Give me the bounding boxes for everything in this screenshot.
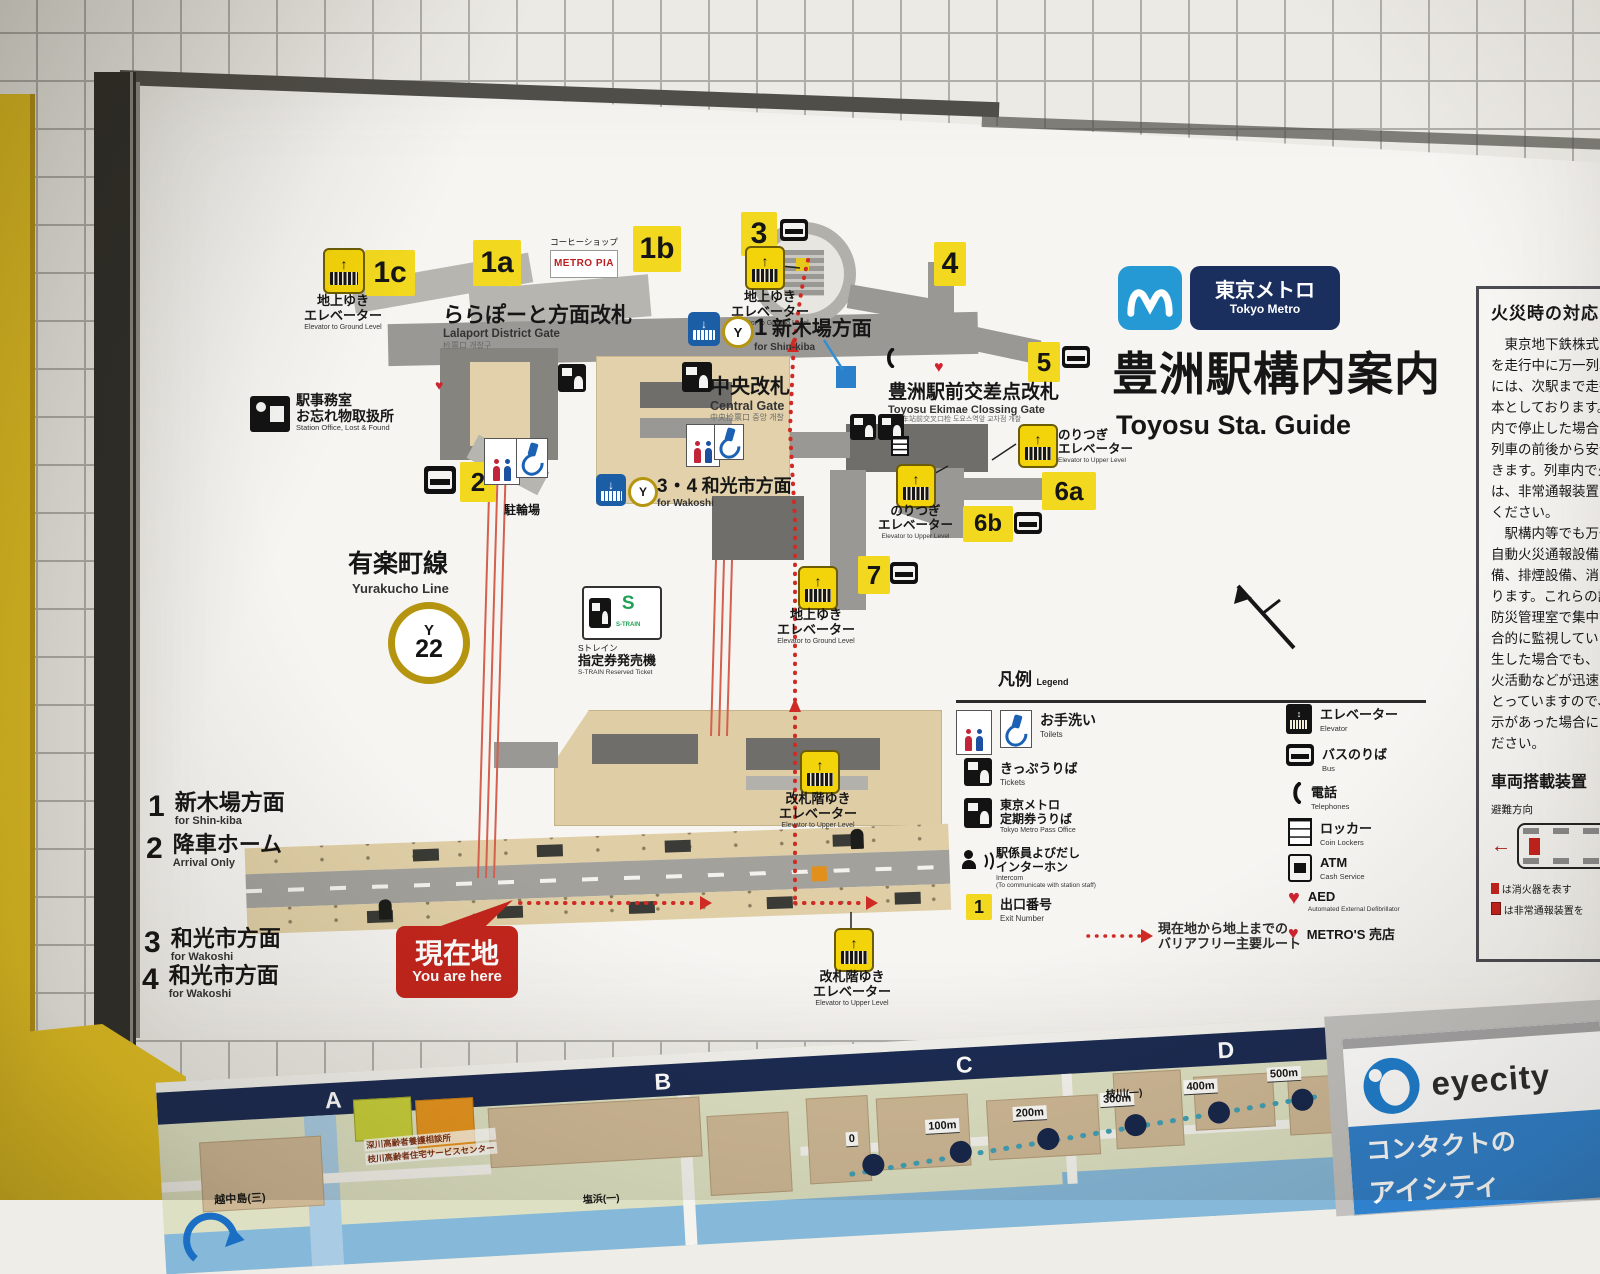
station-number-y22: Y 22 <box>388 602 470 684</box>
bus-icon <box>780 219 808 241</box>
fire-panel-body: 東京地下鉄株式会を走行中に万一列車には、次駅まで走行本としております。内で停止し… <box>1491 334 1600 754</box>
lalaport-gate-room <box>470 362 530 446</box>
mezzanine-stub <box>494 742 558 768</box>
platform-stair-mark <box>767 896 793 909</box>
platform-stair-mark <box>537 844 563 857</box>
passenger-icon <box>378 899 392 919</box>
legend-metros: ♥ METRO'S 売店 <box>1288 924 1395 943</box>
direction-shinkiba: 1 新木場方面 for Shin-kiba <box>754 314 872 353</box>
distance-label-200: 200m <box>1012 1105 1047 1122</box>
distance-label-100: 100m <box>925 1118 960 1135</box>
platform-marker-orange <box>812 866 828 882</box>
legend-bus: バスのりばBus <box>1286 744 1387 773</box>
corridor-gate-link <box>790 432 850 458</box>
legend-pass-office: 東京メトロ 定期券うりばTokyo Metro Pass Office <box>964 798 1076 834</box>
intercom-icon <box>962 846 988 872</box>
fire-panel-title: 火災時の対応 <box>1491 299 1600 324</box>
corridor-to-6a <box>962 478 1048 500</box>
lalaport-gate-label: ららぽーと方面改札 Lalaport District Gate 检票口 개찰구 <box>443 304 673 351</box>
route-note: 現在地から地上までの バリアフリー主要ルート <box>1158 922 1301 952</box>
ticket-machine-icon <box>682 362 712 392</box>
elevator-legend-icon: ↕ <box>1286 704 1312 734</box>
exit-number-icon: 1 <box>966 894 992 920</box>
elevator-icon-transfer-right: ↑ <box>1018 424 1058 468</box>
passenger-icon <box>850 829 864 849</box>
wheelchair-icon <box>714 424 744 460</box>
toilet-icon <box>484 438 520 485</box>
pass-office-icon <box>964 798 992 828</box>
exit-badge-6a: 6a <box>1042 472 1096 510</box>
fire-extinguisher-icon <box>1529 838 1540 855</box>
station-office-icon <box>250 396 290 432</box>
exit-badge-1c: 1c <box>365 250 415 296</box>
ticket-machine-icon <box>850 414 876 440</box>
coffee-shop-label: コーヒーショップ <box>536 238 632 248</box>
phone-icon <box>1290 782 1303 804</box>
legend-elevator: ↕ エレベーターElevator <box>1286 704 1398 734</box>
elevator-1c-label: 地上ゆき エレベーター Elevator to Ground Level <box>278 294 408 332</box>
train-car-diagram: ← <box>1491 823 1600 869</box>
exit-badge-4: 4 <box>934 242 966 286</box>
platform-row-4: 4 和光市方面for Wakoshi <box>142 963 279 1001</box>
station-office-label: 駅事務室 お忘れ物取扱所 Station Office, Lost & Foun… <box>296 392 466 433</box>
evacuation-arrow-icon: ← <box>1491 835 1511 858</box>
distance-label-400: 400m <box>1183 1079 1218 1096</box>
elevator-mezz-label: 改札階ゆき エレベーター Elevator to Upper Level <box>758 792 878 830</box>
north-arrow-icon <box>1222 570 1307 658</box>
metros-shop-icon: ♥ <box>1288 924 1299 942</box>
fire-note-1: は消火器を表す <box>1491 881 1600 896</box>
legend-exit-number: 1 出口番号Exit Number <box>966 894 1052 923</box>
board-title-en: Toyosu Sta. Guide <box>1116 410 1351 441</box>
ad-blue-band: コンタクトの アイシティ <box>1348 1109 1600 1215</box>
legend-underline <box>956 700 1426 703</box>
platform-stair-mark <box>665 840 691 853</box>
legend-phone: 電話Telephones <box>1290 782 1349 811</box>
legend-locker: ロッカーCoin Lockers <box>1288 818 1372 847</box>
platform-stair-mark <box>497 906 523 919</box>
platform-stair-mark <box>895 892 921 905</box>
board-title-jp: 豊洲駅構内案内 <box>1112 348 1441 401</box>
exit-badge-5: 5 <box>1028 342 1060 382</box>
equipment-title: 車両搭載装置 <box>1491 768 1600 792</box>
place-shiohama: 塩浜(一) <box>582 1189 619 1206</box>
legend-tickets: きっぷうりばTickets <box>964 758 1077 787</box>
elevator-icon-transfer-left: ↑ <box>896 464 936 508</box>
ekimae-gate-label: 豊洲駅前交差点改札 Toyosu Ekimae Clossing Gate 丰洲… <box>888 382 1098 425</box>
elevator-icon-platform: ↑ <box>834 928 874 972</box>
ticket-machine-icon <box>558 364 586 392</box>
wheelchair-icon <box>516 438 548 478</box>
platform-row-2: 2 降車ホームArrival Only <box>146 832 282 870</box>
line-name-jp: 有楽町線 <box>348 550 448 579</box>
metros-shop-icon: ♥ <box>934 360 944 376</box>
phone-icon <box>884 348 896 368</box>
line-symbol-y: Y <box>628 477 658 507</box>
locker-icon <box>891 436 909 456</box>
mezzanine-stairs-1 <box>592 734 698 764</box>
evacuation-direction-label: 避難方向 <box>1491 802 1600 817</box>
distance-label-500: 500m <box>1267 1066 1302 1083</box>
strain-label: Sトレイン 指定券発売機 S-TRAIN Reserved Ticket <box>578 644 688 676</box>
fire-extinguisher-icon <box>1491 883 1499 894</box>
elevator-platform-label: 改札階ゆき エレベーター Elevator to Upper Level <box>792 970 912 1008</box>
coffee-shop-sign: METRO PIA <box>550 250 618 278</box>
aed-heart-icon: ♥ <box>435 378 443 392</box>
legend-toilets: お手洗いToilets <box>956 710 1096 755</box>
compass-icon <box>172 1196 246 1270</box>
central-gate-label: 中央改札 Central Gate 中央检票口 중앙 개찰 <box>710 376 870 423</box>
tokyo-metro-wordmark: 東京メトロ Tokyo Metro <box>1190 266 1340 330</box>
ticket-machine-icon <box>964 758 992 786</box>
alarm-device-icon <box>1491 902 1501 915</box>
eyecity-logo-icon <box>1362 1056 1422 1116</box>
line-symbol-y: Y <box>722 316 754 348</box>
locker-icon <box>1288 818 1312 846</box>
tokyo-metro-logo-icon <box>1118 266 1182 330</box>
fire-note-2: は非常通報装置を <box>1491 902 1600 917</box>
atm-icon <box>1288 854 1312 882</box>
platform-stair-mark <box>413 849 439 862</box>
exit-badge-7: 7 <box>858 556 890 594</box>
strain-ticket-box: S S-TRAIN <box>582 586 662 640</box>
elevator-7-label: 地上ゆき エレベーター Elevator to Ground Level <box>756 608 876 646</box>
distance-label-0: 0 <box>846 1132 859 1148</box>
bus-icon <box>1014 512 1042 534</box>
fire-response-panel: 火災時の対応 東京地下鉄株式会を走行中に万一列車には、次駅まで走行本としておりま… <box>1476 286 1600 962</box>
legend-aed: ♥ AEDAutomated External Defibrillator <box>1288 888 1403 913</box>
aed-heart-icon: ♥ <box>1288 888 1300 908</box>
elevator-transfer-left-label: のりつぎ エレベーター Elevator to Upper Level <box>858 504 973 540</box>
elevator-icon-7: ↑ <box>798 566 838 610</box>
escalator-down-icon: ↓ <box>596 474 626 506</box>
bus-icon <box>890 562 918 584</box>
direction-wakoshi: 3・4 和光市方面 for Wakoshi <box>657 476 792 509</box>
legend-title: 凡例 Legend <box>998 670 1068 690</box>
exit-badge-1b: 1b <box>633 226 681 272</box>
eyecity-ad: eyecity コンタクトの アイシティ <box>1342 1021 1600 1215</box>
elevator-icon-3: ↑ <box>745 246 785 290</box>
line-name-en: Yurakucho Line <box>352 582 449 597</box>
exit-badge-1a: 1a <box>473 240 521 286</box>
bus-icon <box>424 466 456 494</box>
platform-stair-mark <box>629 901 655 914</box>
wheelchair-icon <box>1000 710 1032 748</box>
bus-icon <box>1062 346 1090 368</box>
rotunda-elevator-spot <box>796 258 809 271</box>
you-are-here-badge: 現在地 You are here <box>396 926 518 998</box>
place-edagawa: 枝川(一) <box>1105 1084 1142 1101</box>
elevator-icon-1c: ↑ <box>323 248 365 294</box>
eyecity-wordmark: eyecity <box>1430 1057 1551 1103</box>
bicycle-parking-label: 駐輪場 <box>504 504 540 518</box>
bus-icon <box>1286 744 1314 766</box>
elevator-icon-mezzanine: ↑ <box>800 750 840 794</box>
legend-intercom: 駅係員よびだし インターホン Intercom (To communicate … <box>962 846 1096 889</box>
platform-row-3: 3 和光市方面for Wakoshi <box>144 926 281 964</box>
platform-row-1: 1 新木場方面for Shin-kiba <box>148 790 285 828</box>
legend-atm: ATMCash Service <box>1288 854 1365 882</box>
